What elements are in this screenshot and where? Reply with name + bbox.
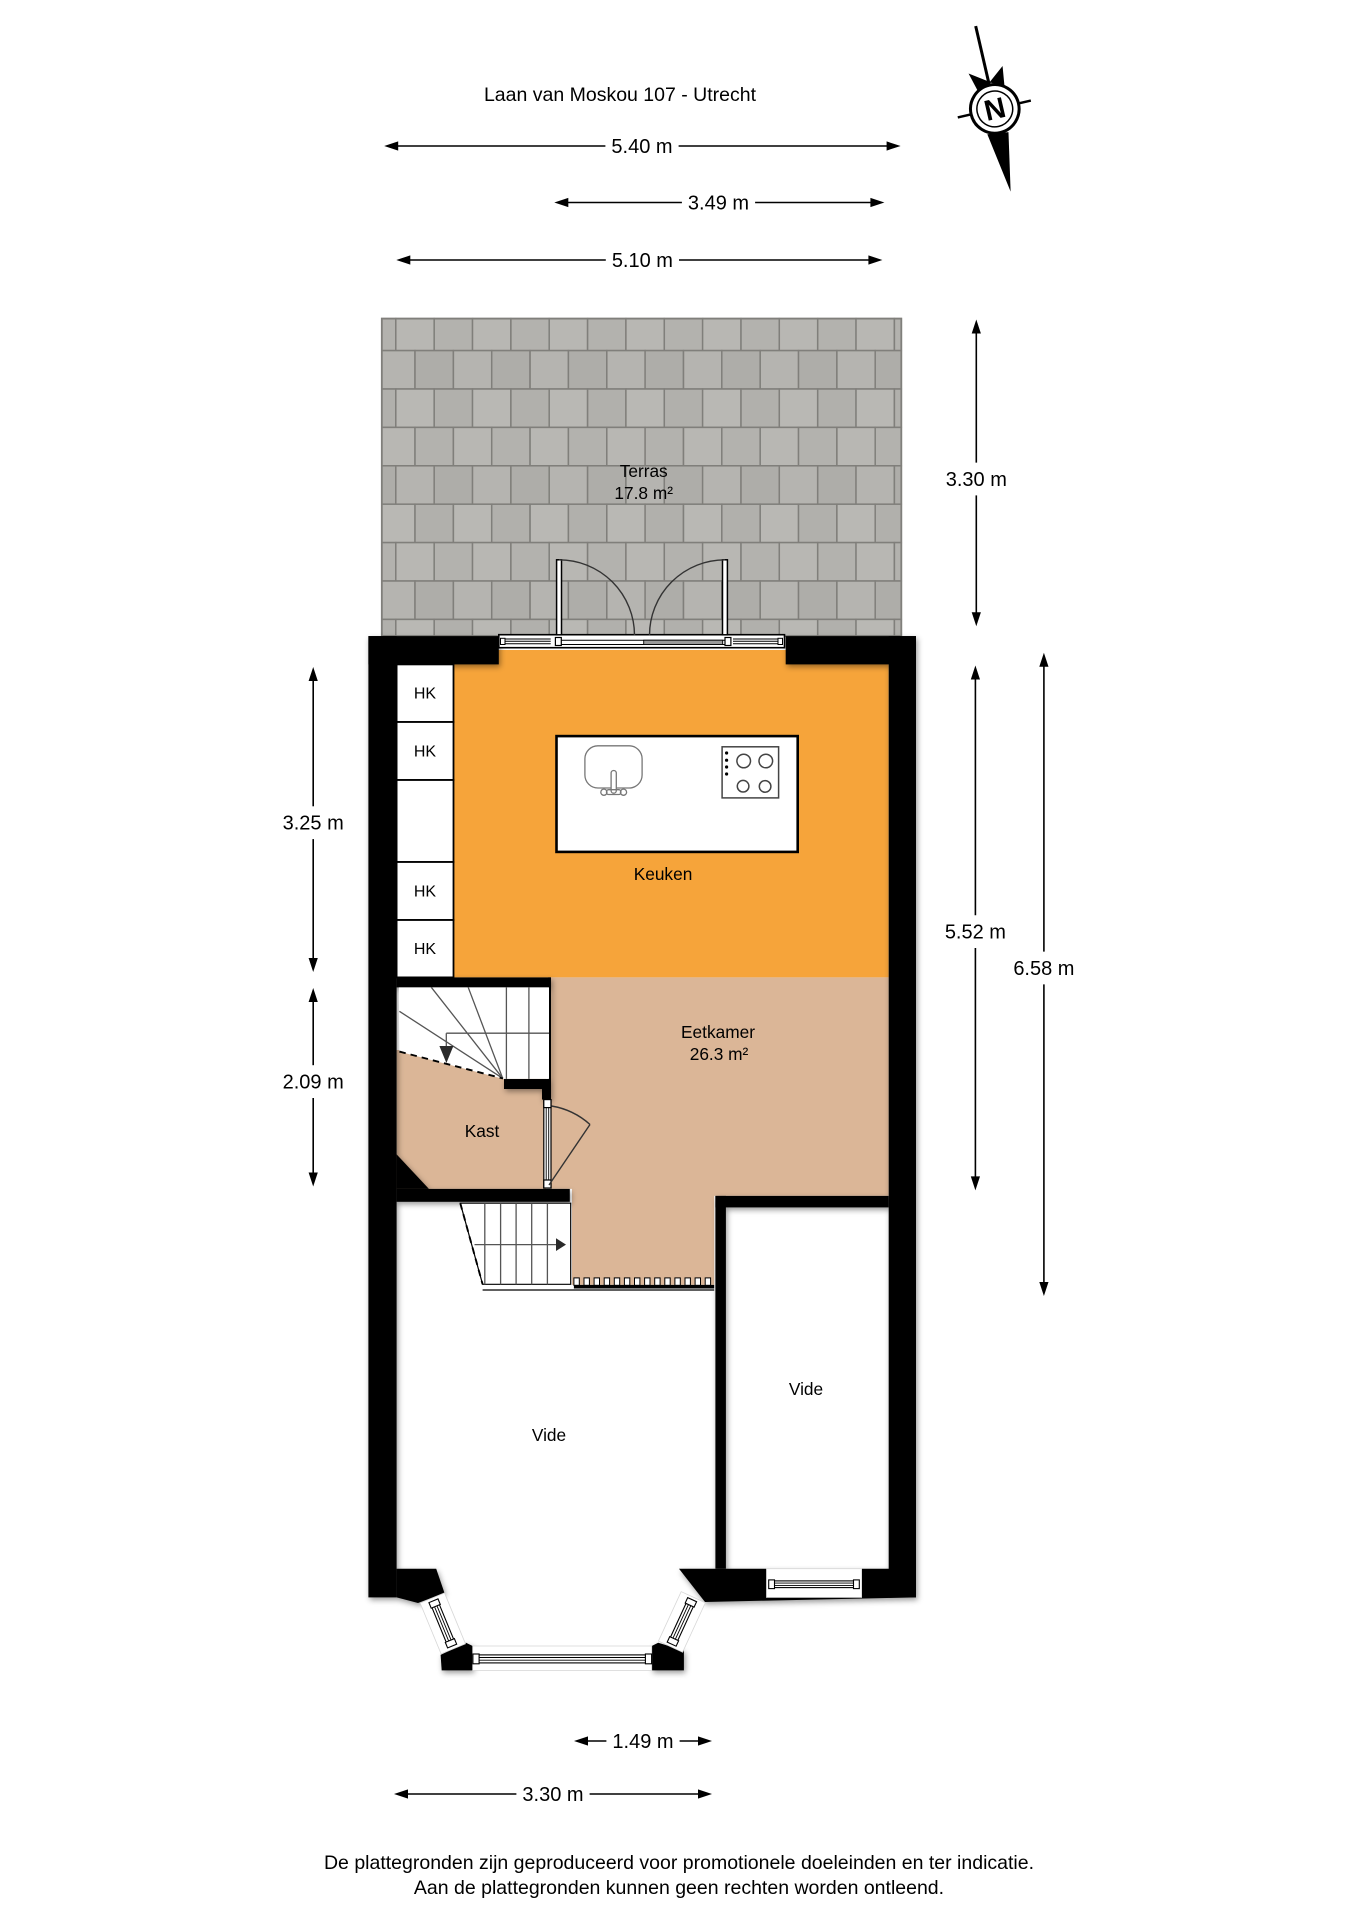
svg-text:3.25 m: 3.25 m (283, 813, 344, 835)
svg-text:Eetkamer: Eetkamer (681, 1022, 755, 1042)
svg-text:Keuken: Keuken (634, 864, 693, 884)
svg-text:5.40 m: 5.40 m (611, 136, 672, 158)
svg-text:Aan de plattegronden kunnen ge: Aan de plattegronden kunnen geen rechten… (414, 1877, 944, 1899)
svg-text:26.3 m²: 26.3 m² (690, 1044, 749, 1064)
svg-text:3.30 m: 3.30 m (946, 469, 1007, 491)
svg-text:2.09 m: 2.09 m (283, 1072, 344, 1094)
svg-text:3.30 m: 3.30 m (522, 1784, 583, 1806)
svg-text:Vide: Vide (532, 1425, 566, 1445)
svg-text:17.8 m²: 17.8 m² (614, 483, 673, 503)
svg-text:Vide: Vide (789, 1379, 823, 1399)
svg-text:De plattegronden zijn geproduc: De plattegronden zijn geproduceerd voor … (324, 1852, 1034, 1874)
svg-text:6.58 m: 6.58 m (1013, 958, 1074, 980)
svg-text:3.49 m: 3.49 m (688, 193, 749, 215)
svg-text:Laan van Moskou 107 - Utrecht: Laan van Moskou 107 - Utrecht (484, 84, 757, 106)
svg-text:5.52 m: 5.52 m (945, 922, 1006, 944)
svg-text:Kast: Kast (465, 1121, 500, 1141)
svg-text:HK: HK (414, 744, 437, 761)
svg-text:1.49 m: 1.49 m (612, 1731, 673, 1753)
svg-text:HK: HK (414, 884, 437, 901)
svg-text:HK: HK (414, 941, 437, 958)
svg-text:HK: HK (414, 686, 437, 703)
svg-text:5.10 m: 5.10 m (612, 250, 673, 272)
svg-text:Terras: Terras (620, 461, 668, 481)
